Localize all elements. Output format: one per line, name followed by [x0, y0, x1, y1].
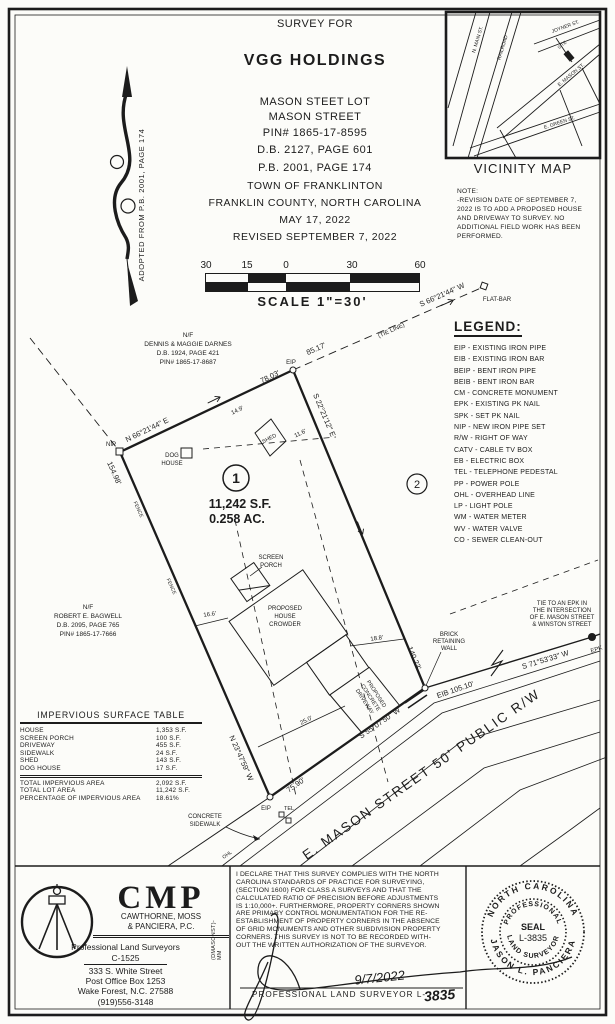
lot1-number: 1 — [232, 470, 240, 486]
lot-name: MASON STEET LOT — [150, 96, 480, 108]
nip-label: NIP — [106, 442, 116, 448]
driveway-label: PROPOSED CONCRETE DRIVEWAY — [353, 679, 387, 716]
vicinity-street-joyner: JOYNER ST. — [551, 19, 580, 35]
firm-name: CAWTHORNE, MOSS & PANCIERA, P.C. — [93, 912, 229, 938]
scale-tick: 30 — [346, 260, 357, 271]
flat-bar-label: FLAT-BAR — [483, 297, 512, 303]
legend-item: LP - LIGHT POLE — [454, 501, 604, 512]
seal-outer-bottom: JASON L. PANCIERA — [489, 938, 578, 978]
distance-top: 78.03' — [259, 368, 282, 385]
tie-line-label: (TIE LINE) — [377, 323, 405, 340]
declaration-block: I DECLARE THAT THIS SURVEY COMPLIES WITH… — [236, 871, 462, 950]
lot2-number: 2 — [414, 479, 420, 491]
legend-item: EB - ELECTRIC BOX — [454, 456, 604, 467]
impervious-surface-table: IMPERVIOUS SURFACE TABLE HOUSE1,353 S.F.… — [20, 710, 202, 802]
survey-for-label: SURVEY FOR — [150, 18, 480, 30]
note-heading: NOTE: — [457, 187, 603, 196]
flat-bar-marker — [480, 282, 488, 290]
lot1-area-sf: 11,242 S.F. — [209, 497, 272, 511]
eip2-label: EIP — [261, 806, 271, 812]
bearing-top: N 66°21'44" E — [124, 415, 170, 444]
file-reference: (DMASONST)-MM — [211, 920, 223, 960]
pin-number: PIN# 1865-17-8595 — [150, 127, 480, 139]
seal-inner-bottom: LAND SURVEYOR — [505, 934, 561, 960]
legend-item: NIP - NEW IRON PIPE SET — [454, 422, 604, 433]
scale-label: SCALE 1"=30' — [200, 294, 425, 309]
house-label: HOUSE — [274, 614, 295, 620]
firm-address: 333 S. White Street Post Office Box 1253… — [33, 966, 218, 1007]
svg-text:DRIVEWAY: DRIVEWAY — [354, 688, 375, 716]
lot1-area-ac: 0.258 AC. — [209, 512, 265, 526]
adjoiner2-name: ROBERT E. BAGWELL — [54, 613, 122, 620]
title-block: SURVEY FOR VGG HOLDINGS MASON STEET LOT … — [150, 18, 480, 243]
adjoiner1-deed: D.B. 1924, PAGE 421 — [157, 350, 220, 357]
survey-date: MAY 17, 2022 — [150, 214, 480, 226]
seal-license: L-3835 — [519, 933, 547, 943]
house-label: PROPOSED — [268, 606, 303, 612]
declaration-line: (SECTION 1600) FOR CLASS A SURVEYS AND T… — [236, 887, 462, 895]
surveyor-seal: NORTH CAROLINA JASON L. PANCIERA PROFESS… — [482, 881, 584, 983]
proposed-house-outline — [229, 570, 347, 686]
brick-wall-label: WALL — [441, 646, 458, 652]
dim-25-0: 25.0' — [299, 716, 313, 727]
screen-porch-label: PORCH — [260, 563, 282, 569]
vicinity-street-green: E. GREEN ST. — [543, 115, 576, 131]
legend-item: PP - POWER POLE — [454, 479, 604, 490]
legend-item: EIB - EXISTING IRON BAR — [454, 354, 604, 365]
signature-date: 9/7/2022 — [354, 967, 407, 987]
note-line: 2022 IS TO ADD A PROPOSED HOUSE — [457, 205, 603, 214]
declaration-line: OF GRID MONUMENTS AND OTHER SUBDIVISION … — [236, 926, 462, 934]
driveway-edge — [369, 667, 400, 706]
town-name: TOWN OF FRANKLINTON — [150, 180, 480, 192]
adopted-note: ADOPTED FROM P.B. 2001, PAGE 174 — [137, 129, 146, 282]
dim-11-6: 11.6' — [294, 429, 308, 440]
lot2-circle — [407, 474, 427, 494]
dim-18-8: 18.8' — [370, 635, 384, 643]
street-name: MASON STREET — [150, 111, 480, 123]
svg-text:NORTH CAROLINA: NORTH CAROLINA — [485, 881, 581, 919]
legend-item: TEL - TELEPHONE PEDESTAL — [454, 467, 604, 478]
concrete-sidewalk-label: SIDEWALK — [190, 822, 221, 828]
legend-item: BEIB - BENT IRON BAR — [454, 377, 604, 388]
scale-tick: 60 — [414, 260, 425, 271]
svg-text:PROFESSIONAL: PROFESSIONAL — [503, 901, 563, 926]
legend-item: WM - WATER METER — [454, 512, 604, 523]
seal-inner-top: PROFESSIONAL — [503, 901, 563, 926]
impervious-table-title: IMPERVIOUS SURFACE TABLE — [20, 710, 202, 724]
dog-house-label: HOUSE — [161, 461, 182, 467]
note-line: PERFORMED. — [457, 232, 603, 241]
declaration-line: I DECLARE THAT THIS SURVEY COMPLIES WITH… — [236, 871, 462, 879]
bearing-right: S 22°21'12" E — [311, 392, 337, 438]
table-row: SCREEN PORCH100 S.F. — [20, 735, 202, 743]
epk-marker — [589, 634, 596, 641]
legend-item: CATV - CABLE TV BOX — [454, 445, 604, 456]
structures — [181, 419, 404, 747]
scale-tick: 15 — [241, 260, 252, 271]
declaration-line: CALCULATED RATIO OF PRECISION BEFORE ADJ… — [236, 895, 462, 903]
fence-label: FENCE — [165, 578, 178, 597]
legend-item: BEIP - BENT IRON PIPE — [454, 366, 604, 377]
table-total-row: TOTAL IMPERVIOUS AREA2,092 S.F. — [20, 780, 202, 788]
concrete-sidewalk-label: CONCRETE — [188, 814, 222, 820]
ohl-label: OHL — [221, 850, 233, 861]
note-line: AND DRIVEWAY TO SURVEY. NO — [457, 214, 603, 223]
seal-outer-top: NORTH CAROLINA — [485, 881, 581, 919]
tie-note: TIE TO AN EPK IN — [537, 601, 587, 607]
legend-item: R/W - RIGHT OF WAY — [454, 433, 604, 444]
deed-book-ref: D.B. 2127, PAGE 601 — [150, 144, 480, 156]
legend-title: LEGEND: — [454, 319, 522, 337]
surveyor-cert-line: PROFESSIONAL LAND SURVEYOR L- — [252, 990, 462, 999]
scale-tick: 30 — [200, 260, 211, 271]
tel-label: TEL — [284, 806, 294, 812]
scale-tick: 0 — [283, 260, 289, 271]
adjoiner2-deed: D.B. 2095, PAGE 765 — [57, 622, 120, 629]
adjoiner1-pin: PIN# 1865-17-8687 — [160, 359, 217, 366]
legend: LEGEND: EIP - EXISTING IRON PIPE EIB - E… — [454, 318, 604, 546]
declaration-line: OUT THE WRITTEN AUTHORIZATION OF THE SUR… — [236, 942, 462, 950]
plat-book-ref: P.B. 2001, PAGE 174 — [150, 162, 480, 174]
adjoiner2-pin: PIN# 1865-17-7666 — [60, 631, 117, 638]
vicinity-site-label: SITE — [557, 40, 568, 50]
legend-item: CM - CONCRETE MONUMENT — [454, 388, 604, 399]
brick-wall-label: RETAINING — [433, 639, 466, 645]
distance-right: 140.23' — [405, 645, 423, 671]
scale-bar: 30 15 0 30 60 SCALE 1"=30' — [200, 260, 432, 312]
firm-profession: Professional Land Surveyors C-1525 — [33, 942, 218, 965]
house-label: CROWDER — [269, 622, 301, 628]
declaration-line: IS 1:10,000+. FURTHERMORE, PROPERTY CORN… — [236, 903, 462, 911]
eib-distance-label: EIB 105.10' — [435, 679, 475, 700]
bearing-left: N 23°47'59" W — [227, 734, 255, 783]
shed-label: SHED — [261, 433, 277, 445]
revision-date: REVISED SEPTEMBER 7, 2022 — [150, 231, 480, 243]
legend-item: EPK - EXISTING PK NAIL — [454, 399, 604, 410]
tie-note: THE INTERSECTION — [533, 608, 591, 614]
table-total-row: TOTAL LOT AREA11,242 S.F. — [20, 787, 202, 795]
brick-wall-label: BRICK — [440, 632, 458, 638]
bearing-front: S 55°07'50" W — [357, 705, 403, 741]
seal-center-label: SEAL — [521, 922, 546, 932]
scale-bar-blocks — [205, 273, 420, 292]
street-lines — [168, 634, 607, 866]
adjoiner2-nf: N/F — [83, 604, 94, 611]
note-line: ADDITIONAL FIELD WORK HAS BEEN — [457, 223, 603, 232]
garage-outline — [307, 635, 369, 695]
tie-note: & WINSTON STREET — [532, 622, 592, 628]
street-name-label: E. MASON STREET 50' PUBLIC R/W — [300, 686, 543, 863]
survey-sheet: SURVEY FOR VGG HOLDINGS MASON STEET LOT … — [0, 0, 615, 1024]
legend-item: EIP - EXISTING IRON PIPE — [454, 343, 604, 354]
dog-house-label: DOG — [165, 453, 179, 459]
distance-left: 154.98' — [105, 460, 123, 486]
tie-note: OF E. MASON STREET — [530, 615, 595, 621]
driveway-edge — [330, 695, 362, 733]
client-name: VGG HOLDINGS — [150, 52, 480, 70]
fence-label: FENCE — [132, 501, 145, 520]
shed-outline — [255, 419, 286, 456]
vicinity-map-caption: VICINITY MAP — [446, 161, 600, 176]
vicinity-street-railroad: RAILROAD — [496, 34, 509, 61]
note-line: -REVISION DATE OF SEPTEMBER 7, — [457, 196, 603, 205]
note-block: NOTE: -REVISION DATE OF SEPTEMBER 7, 202… — [457, 187, 603, 242]
tie-street-bearing: S 71°53'33" W — [521, 648, 571, 671]
table-total-row: PERCENTAGE OF IMPERVIOUS AREA18.61% — [20, 795, 202, 803]
svg-text:PROPOSED: PROPOSED — [365, 679, 387, 708]
dim-14-9: 14.9' — [230, 406, 244, 417]
distance-front: 75.90' — [285, 775, 307, 794]
adjoiner1-name: DENNIS & MAGGIE DARNES — [144, 341, 232, 348]
dog-house-outline — [181, 448, 192, 458]
table-row: SHED143 S.F. — [20, 757, 202, 765]
line-arrows — [206, 297, 454, 535]
svg-text:JASON L. PANCIERA: JASON L. PANCIERA — [489, 938, 578, 978]
legend-item: OHL - OVERHEAD LINE — [454, 490, 604, 501]
lot1-circle — [223, 465, 249, 491]
table-row: DOG HOUSE17 S.F. — [20, 765, 202, 773]
north-arrow-icon — [111, 66, 139, 306]
vicinity-street-mason: E. MASON ST. — [557, 62, 586, 88]
adjoiner1-nf: N/F — [183, 332, 194, 339]
table-row: DRIVEWAY455 S.F. — [20, 742, 202, 750]
site-marker — [563, 50, 574, 62]
legend-item: SPK - SET PK NAIL — [454, 411, 604, 422]
declaration-line: ESTABLISHMENT OF PROPERTY CORNERS IN THE… — [236, 918, 462, 926]
declaration-line: CORNERS. THIS SURVEY IS NOT TO BE RECORD… — [236, 934, 462, 942]
legend-item: WV - WATER VALVE — [454, 524, 604, 535]
table-row: SIDEWALK24 S.F. — [20, 750, 202, 758]
svg-text:CONCRETE: CONCRETE — [359, 683, 381, 712]
screen-porch-outline — [231, 563, 270, 602]
legend-item: CO - SEWER CLEAN-OUT — [454, 535, 604, 546]
svg-text:LAND SURVEYOR: LAND SURVEYOR — [505, 934, 561, 960]
county-name: FRANKLIN COUNTY, NORTH CAROLINA — [150, 197, 480, 209]
declaration-line: CAROLINA STANDARDS OF PRACTICE FOR SURVE… — [236, 879, 462, 887]
firm-block: CMP CAWTHORNE, MOSS & PANCIERA, P.C. Pro… — [15, 868, 228, 1014]
eip-label: EIP — [286, 360, 296, 366]
tie-distance: 85.17' — [305, 340, 328, 357]
epk-label: EPK — [590, 645, 603, 654]
dim-16-6: 16.6' — [203, 611, 217, 619]
screen-porch-label: SCREEN — [258, 555, 283, 561]
declaration-line: ARE PRIMARY CONTROL MONUMENTATION FOR TH… — [236, 910, 462, 918]
table-row: HOUSE1,353 S.F. — [20, 727, 202, 735]
